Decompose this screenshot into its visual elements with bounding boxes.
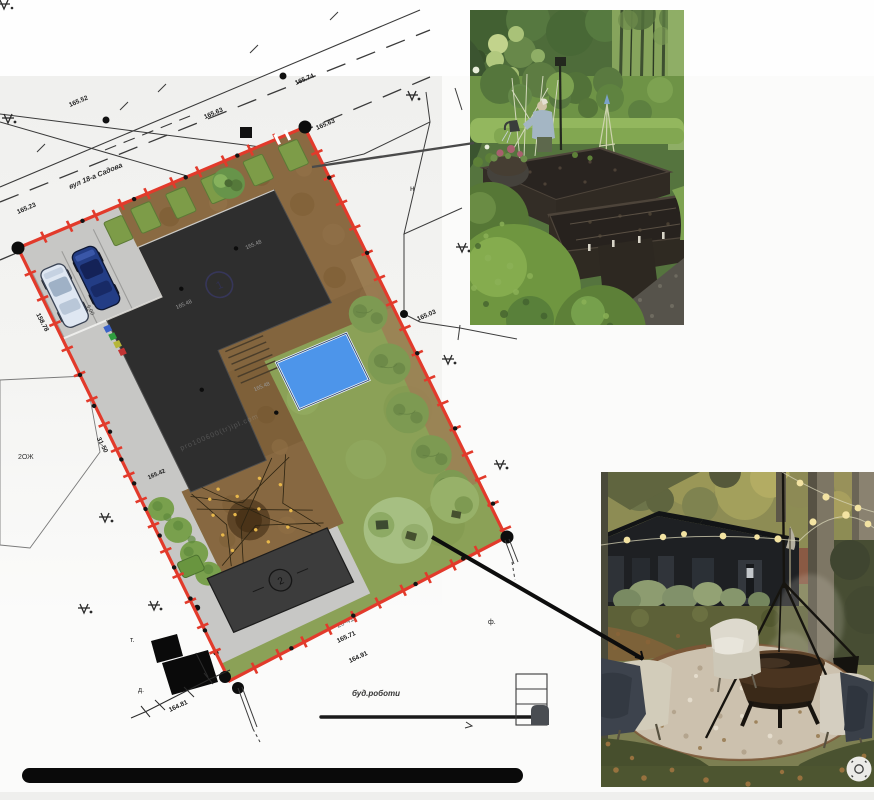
svg-text:т.: т. bbox=[130, 637, 134, 644]
svg-text:д.: д. bbox=[138, 687, 144, 694]
svg-text:н: н bbox=[410, 184, 414, 193]
svg-text:ф.: ф. bbox=[488, 619, 496, 626]
svg-text:2ОЖ: 2ОЖ bbox=[18, 454, 34, 461]
svg-text:буд.роботи: буд.роботи bbox=[352, 689, 400, 698]
